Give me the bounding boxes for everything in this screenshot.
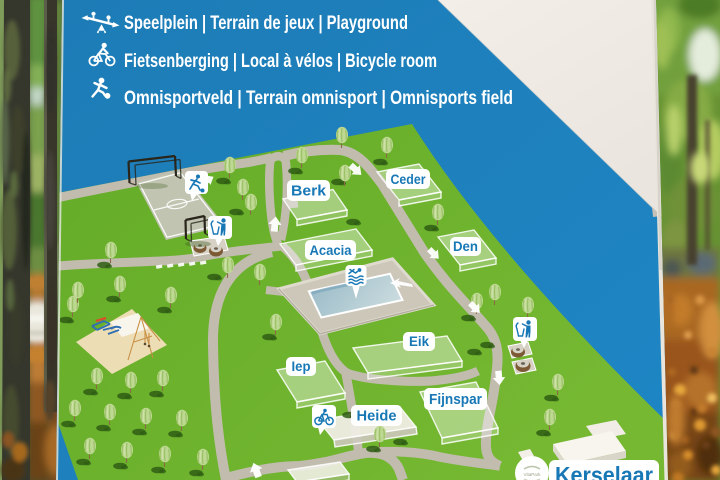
svg-text:Omnisportveld | Terrain omnisp: Omnisportveld | Terrain omnisport | Omni… <box>124 88 513 109</box>
svg-text:Ceder: Ceder <box>391 171 426 187</box>
svg-text:Den: Den <box>453 238 478 254</box>
svg-text:Speelplein | Terrain de jeux |: Speelplein | Terrain de jeux | Playgroun… <box>124 13 408 34</box>
svg-text:Eik: Eik <box>409 333 429 349</box>
svg-text:Iep: Iep <box>292 358 311 374</box>
svg-text:Acacia: Acacia <box>310 242 352 258</box>
svg-text:Fietsenberging | Local à vélos: Fietsenberging | Local à vélos | Bicycle… <box>124 51 437 72</box>
svg-text:Berk: Berk <box>291 183 327 200</box>
svg-text:Fijnspar: Fijnspar <box>429 391 482 408</box>
svg-text:Kerselaar: Kerselaar <box>555 462 653 480</box>
svg-text:VitaPark: VitaPark <box>524 472 542 477</box>
svg-text:Heide: Heide <box>357 408 397 425</box>
